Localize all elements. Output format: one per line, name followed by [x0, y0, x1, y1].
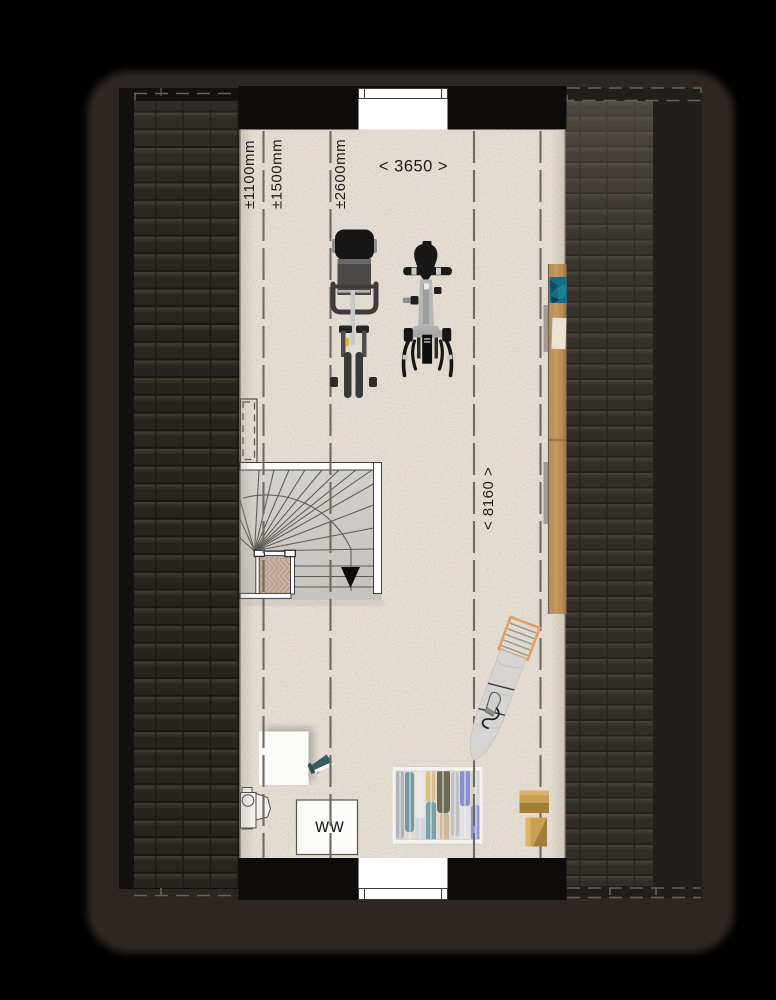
- svg-text:±1100mm: ±1100mm: [241, 140, 258, 209]
- svg-text:±2600mm: ±2600mm: [332, 139, 349, 209]
- svg-text:±1500mm: ±1500mm: [269, 139, 286, 209]
- svg-text:< 8160 >: < 8160 >: [480, 467, 497, 530]
- svg-text:< 3650 >: < 3650 >: [379, 158, 448, 176]
